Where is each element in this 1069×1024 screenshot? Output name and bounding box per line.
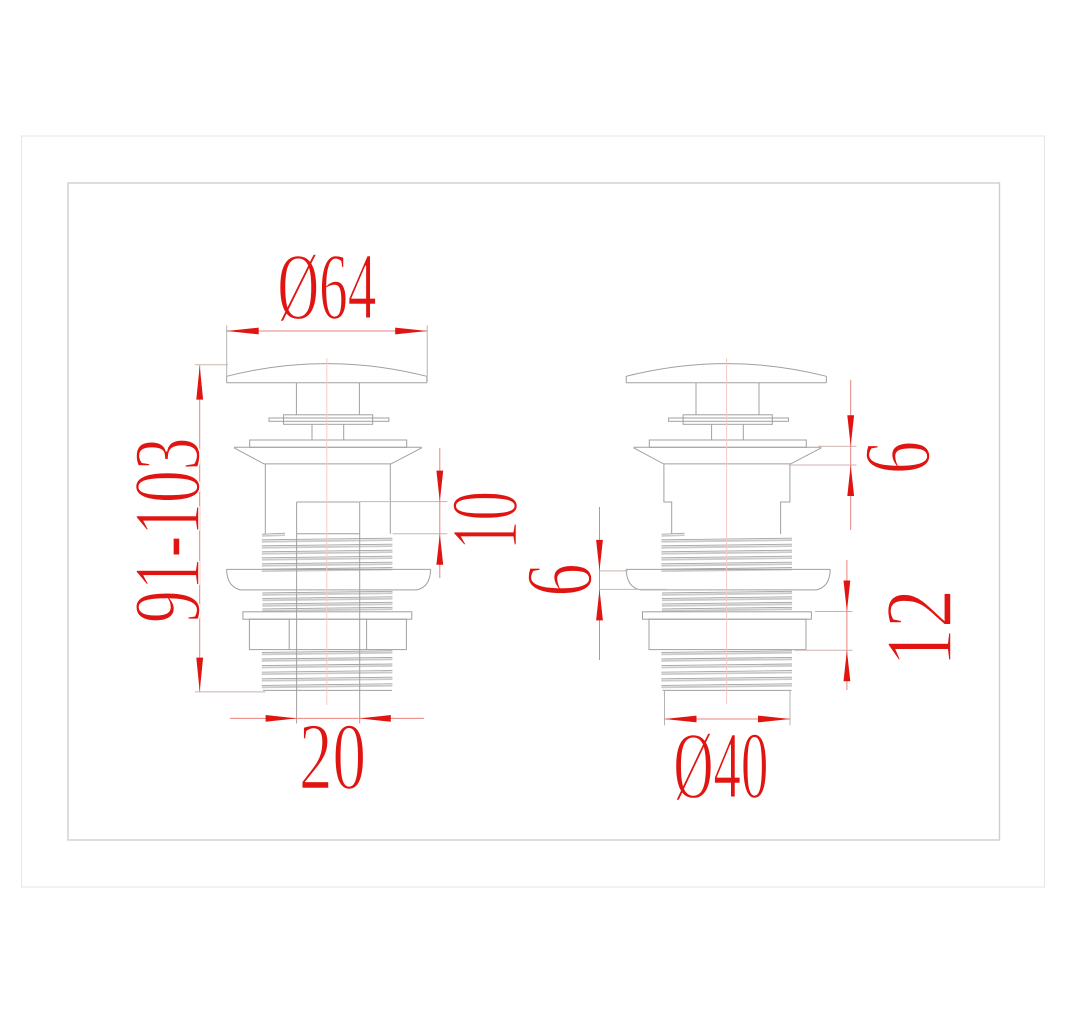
svg-text:Ø64: Ø64 <box>278 233 377 339</box>
svg-text:10: 10 <box>432 491 538 550</box>
svg-text:6: 6 <box>506 564 612 597</box>
svg-text:Ø40: Ø40 <box>674 712 769 818</box>
svg-text:20: 20 <box>299 704 366 810</box>
svg-text:6: 6 <box>844 441 950 474</box>
svg-text:12: 12 <box>866 589 972 667</box>
svg-text:91-103: 91-103 <box>114 438 220 624</box>
